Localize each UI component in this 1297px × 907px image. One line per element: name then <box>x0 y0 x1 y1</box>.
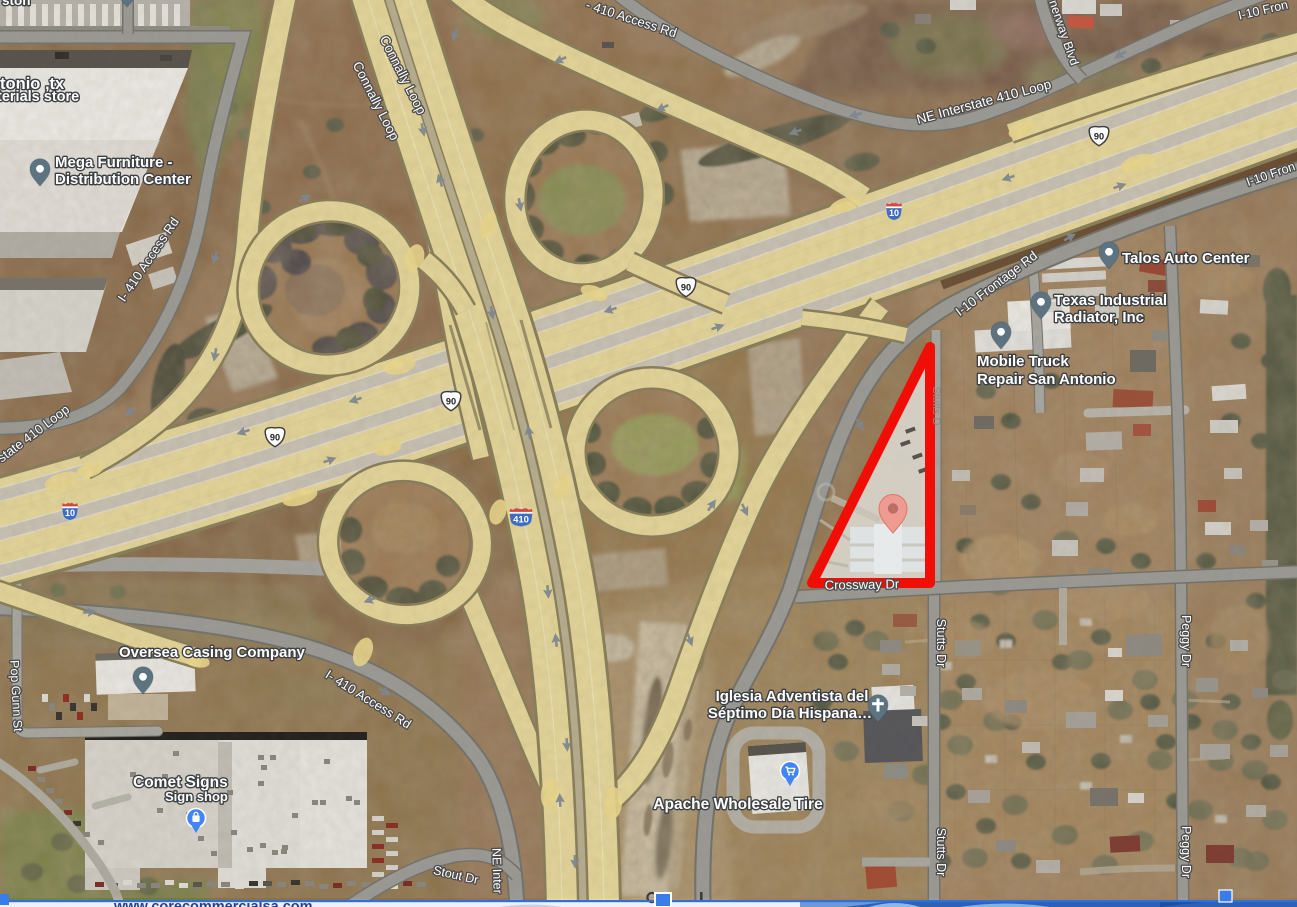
svg-text:90: 90 <box>270 432 280 442</box>
svg-text:90: 90 <box>1094 131 1104 141</box>
svg-text:Oversea Casing Company: Oversea Casing Company <box>119 644 306 661</box>
svg-text:Apache Wholesale Tire: Apache Wholesale Tire <box>653 796 823 813</box>
svg-text:Mega Furniture -: Mega Furniture - <box>55 154 173 171</box>
svg-text:Mobile Truck: Mobile Truck <box>977 353 1069 370</box>
svg-text:90: 90 <box>446 396 456 406</box>
svg-text:Sign shop: Sign shop <box>165 789 228 804</box>
svg-text:Iglesia Adventista del: Iglesia Adventista del <box>716 688 869 705</box>
svg-text:10: 10 <box>889 208 899 218</box>
svg-text:Peggy Dr: Peggy Dr <box>1179 615 1193 667</box>
svg-text:Séptimo Día Hispana…: Séptimo Día Hispana… <box>708 705 872 722</box>
svg-text:Radiator, Inc: Radiator, Inc <box>1054 309 1144 326</box>
svg-text:Stutts Dr: Stutts Dr <box>934 828 948 877</box>
svg-text:terials store: terials store <box>0 89 79 105</box>
svg-text:10: 10 <box>65 508 75 518</box>
svg-text:Texas Industrial: Texas Industrial <box>1054 292 1167 309</box>
svg-text:410: 410 <box>513 514 529 525</box>
svg-text:ston: ston <box>2 0 31 8</box>
svg-text:Crossway Dr: Crossway Dr <box>825 576 900 592</box>
svg-text:Stutts D: Stutts D <box>930 386 942 425</box>
svg-text:NE Inter: NE Inter <box>489 848 505 894</box>
svg-text:Talos Auto Center: Talos Auto Center <box>1122 250 1250 267</box>
svg-text:Peggy Dr: Peggy Dr <box>1179 826 1193 878</box>
svg-text:Distribution Center: Distribution Center <box>55 171 191 188</box>
svg-text:Stutts Dr: Stutts Dr <box>934 619 948 668</box>
svg-text:Repair San Antonio: Repair San Antonio <box>977 371 1116 388</box>
svg-text:90: 90 <box>681 282 691 292</box>
